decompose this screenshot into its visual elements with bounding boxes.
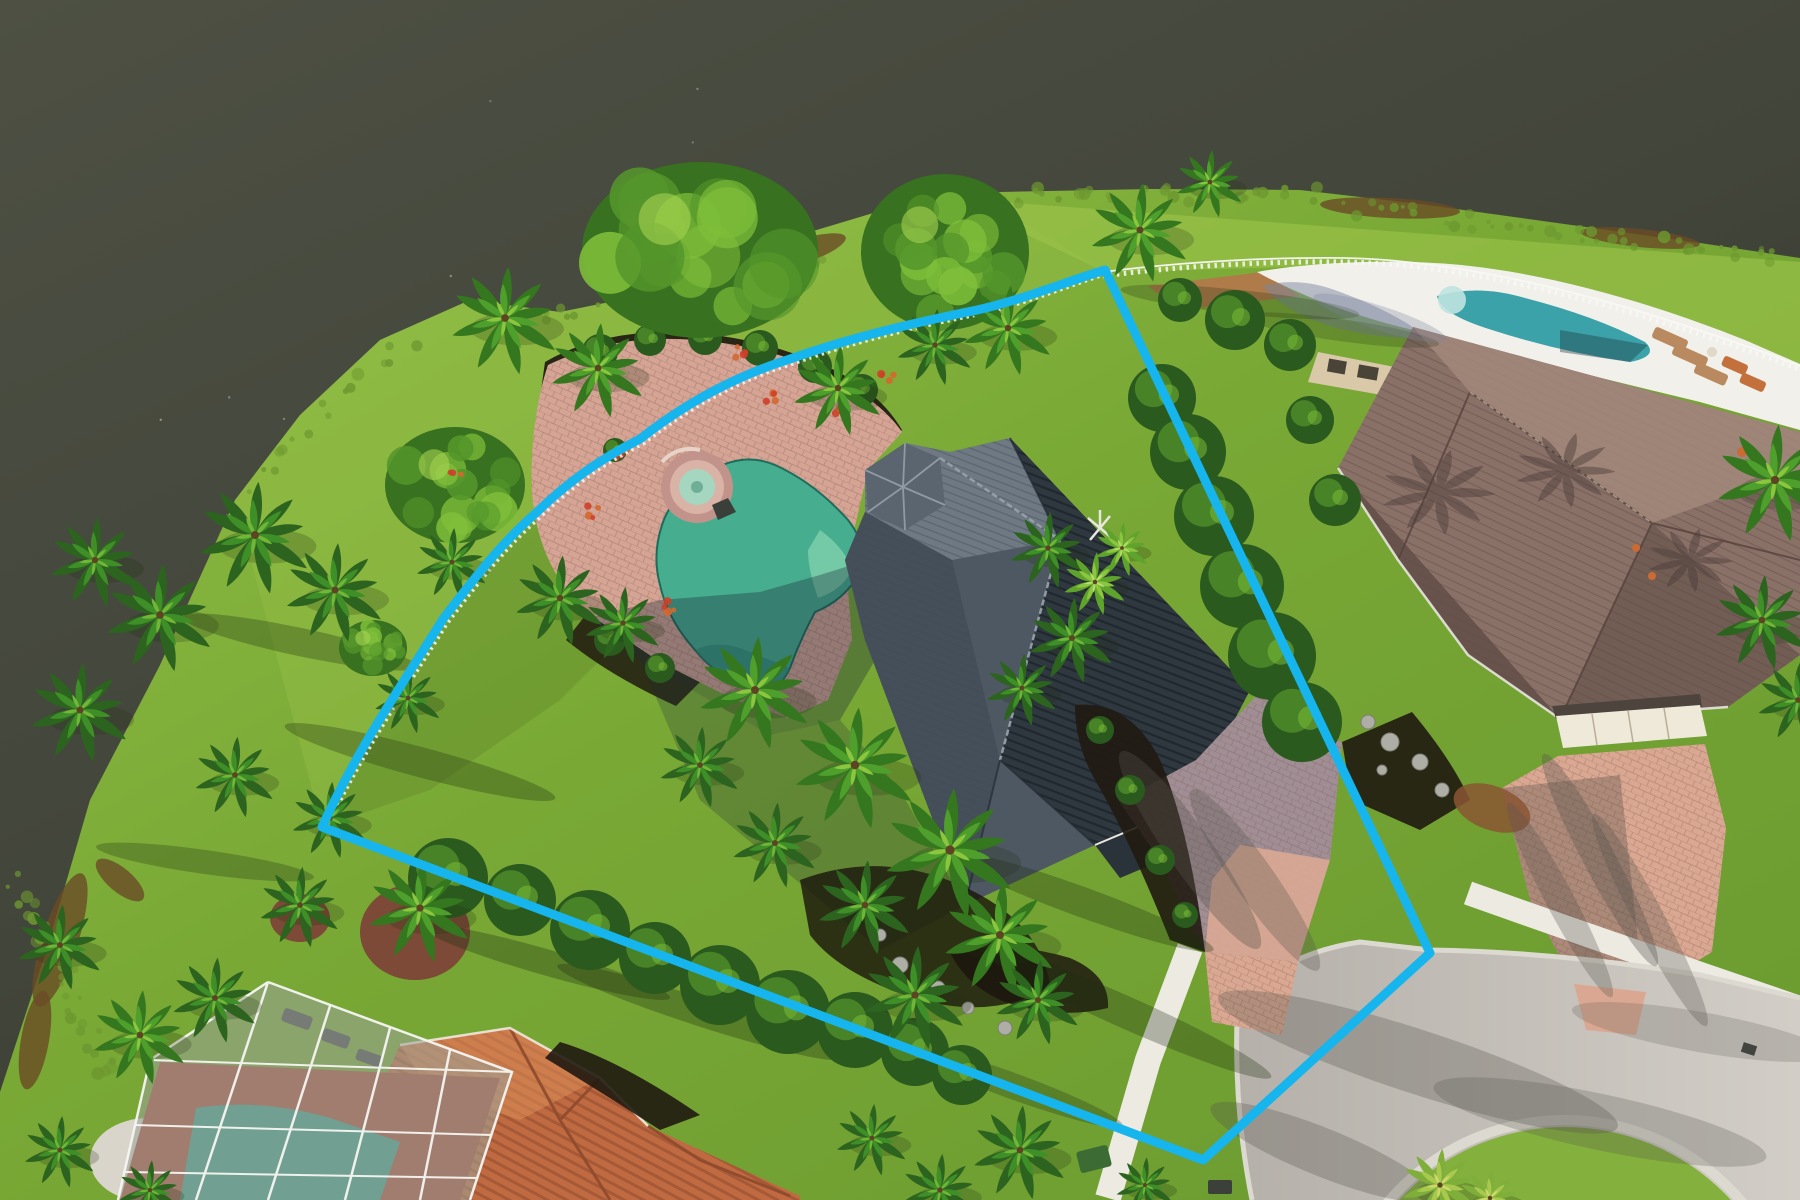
cast-shadow	[180, 603, 421, 680]
cast-shadow	[1530, 747, 1671, 974]
algae-clump	[1732, 245, 1738, 251]
roof-nook	[865, 443, 945, 530]
algae-clump	[261, 467, 266, 472]
algae-clump	[1465, 209, 1475, 219]
algae-clump	[1257, 187, 1268, 198]
algae-clump	[70, 965, 78, 973]
palm-cluster-bed	[800, 866, 1050, 1007]
algae-clump	[1105, 192, 1112, 199]
ground-shadows	[94, 278, 1800, 1200]
algae-clump	[760, 269, 769, 278]
algae-clump	[1031, 182, 1044, 195]
flowering-shrub	[613, 445, 630, 461]
algae-clump	[1769, 248, 1775, 254]
sidewalk-left	[1108, 948, 1190, 1198]
landscape-boulder	[874, 929, 886, 941]
neighbor-roof-fascia	[1338, 468, 1728, 719]
algae-clump	[1310, 197, 1318, 205]
algae-clump	[1575, 225, 1585, 235]
palm-tree	[836, 1104, 911, 1177]
mulch-ring	[360, 884, 470, 980]
algae-clump	[27, 912, 40, 925]
white-fence	[322, 258, 1800, 829]
shrub	[742, 330, 778, 366]
palm-tree	[106, 564, 219, 673]
algae-clump	[1594, 238, 1599, 243]
neighbor-pool-shadow	[1560, 330, 1648, 362]
palm-tree	[1010, 512, 1090, 589]
driveway-left-bed	[1075, 705, 1205, 952]
algae-clump	[1281, 185, 1288, 192]
aerial-photo-canvas	[0, 0, 1800, 1200]
shore-mud-patch	[21, 868, 99, 1012]
shrub	[1174, 476, 1254, 556]
entry-gable-fascia	[1095, 805, 1190, 845]
water-sparkle	[599, 457, 601, 459]
boulders	[874, 715, 1449, 1035]
algae-clump	[1351, 210, 1362, 221]
roof-hip-lines	[965, 438, 1095, 905]
property-boundary-outline	[322, 270, 1430, 1160]
algae-clump	[1368, 198, 1376, 206]
palm-tree	[1757, 661, 1800, 743]
algae-clump	[304, 430, 313, 439]
algae-clump	[42, 922, 49, 929]
algae-clump	[52, 940, 59, 947]
palm-tree	[585, 587, 665, 664]
water-sparkle	[1007, 853, 1009, 855]
shrub	[1264, 319, 1316, 371]
algae-clump	[14, 900, 23, 909]
algae-clump	[1341, 201, 1345, 205]
shrub	[1205, 290, 1265, 350]
tile-roof	[330, 1028, 800, 1200]
algae-clump	[1676, 237, 1683, 244]
algae-clump	[1160, 185, 1171, 196]
palm-tree	[93, 990, 192, 1085]
shrub	[846, 374, 878, 406]
algae-clump	[1216, 183, 1228, 195]
neighbor-pool	[1437, 290, 1650, 362]
shrub	[1262, 682, 1342, 762]
water-sparkle	[812, 335, 814, 337]
palm-tree	[551, 323, 650, 418]
palm-tree	[368, 859, 476, 964]
palm-tree	[1029, 597, 1119, 683]
algae-clump	[343, 388, 349, 394]
algae-clump	[49, 956, 58, 965]
cast-shadow	[1310, 285, 1451, 351]
road-curb	[1237, 942, 1800, 1200]
flowering-shrub	[832, 401, 848, 417]
cast-shadow	[553, 952, 847, 1071]
enclosure-pool	[180, 1105, 400, 1200]
algae-clump	[1183, 196, 1194, 207]
palm-tree	[416, 528, 491, 601]
front-yard-bed	[950, 947, 1108, 1013]
water-sparkle	[1024, 420, 1026, 422]
pool-lower-bed	[566, 612, 700, 706]
palm-tree	[973, 1105, 1072, 1200]
flowering-shrub	[763, 389, 779, 405]
neighbor-garage-shade	[1552, 694, 1702, 719]
mailbox	[1741, 1042, 1757, 1056]
palm-tree	[374, 666, 445, 734]
algae-clump	[78, 1019, 88, 1029]
roof-vent	[1737, 447, 1747, 457]
shrub	[645, 653, 675, 683]
algae-clump	[721, 270, 726, 275]
water-sparkle	[535, 414, 537, 416]
palm-tree	[732, 802, 822, 888]
algae-clump	[671, 272, 681, 282]
neighbor-driveway-apron	[1574, 984, 1646, 1035]
shrub	[1286, 396, 1334, 444]
algae-clump	[319, 400, 327, 408]
algae-clump	[1055, 196, 1062, 203]
water-sparkle	[450, 275, 452, 277]
roof-vent	[1648, 572, 1656, 580]
shrub	[746, 970, 830, 1054]
tile-roof-texture	[330, 1028, 800, 1200]
algae-clump	[1683, 243, 1695, 255]
shoreline-land	[0, 189, 1800, 1200]
shore-mud-patch	[751, 226, 850, 278]
algae-clump	[21, 890, 34, 903]
cast-shadow	[1202, 1085, 1443, 1200]
shrub	[817, 992, 893, 1068]
landscape-boulder	[998, 1021, 1012, 1035]
algae-clump	[1527, 225, 1534, 232]
algae-clump	[411, 340, 422, 351]
lounge-chairs	[1651, 326, 1767, 393]
cast-shadow	[1496, 796, 1624, 1003]
screen-enclosure-mesh	[118, 982, 512, 1200]
water-sparkle	[696, 88, 698, 90]
hedge-shrubs	[408, 278, 1361, 1105]
fence-back-rail	[322, 272, 1103, 829]
roof-dark-slope	[1000, 438, 1250, 845]
palm-tree	[285, 543, 389, 643]
canopy-tree	[339, 619, 407, 676]
water-sparkle	[309, 709, 311, 711]
driveway-right-bed	[1342, 712, 1470, 830]
cast-shadow	[1569, 990, 1800, 1075]
palm-shadow-on-roof	[1381, 449, 1496, 536]
algae-clump	[661, 279, 672, 290]
cast-shadow	[94, 835, 315, 889]
weather-vane	[1088, 510, 1112, 540]
neighbor-house-right	[1148, 262, 1800, 992]
shrub	[1228, 612, 1316, 700]
palm-tree	[793, 345, 887, 436]
algae-clump	[82, 1043, 92, 1053]
enclosure-brick-deck	[120, 1062, 500, 1200]
algae-clump	[274, 447, 284, 457]
palm-tree	[1716, 424, 1800, 542]
palm-tree	[1715, 575, 1800, 670]
cast-shadow	[1208, 967, 1627, 1158]
palm-tree	[30, 663, 134, 763]
algae-clump	[1078, 188, 1090, 200]
palm-tree	[963, 285, 1057, 376]
sidewalk-right	[1468, 893, 1800, 1008]
neighbor-roof-ridges	[1398, 392, 1800, 719]
main-house-roof	[845, 438, 1250, 905]
palm-tree	[50, 517, 144, 608]
cul-de-sac-island	[1340, 1127, 1790, 1200]
tile-roof-ridges	[510, 1028, 790, 1200]
neighbor-roof-dark-face2	[1560, 523, 1800, 719]
fence-back-pickets	[326, 274, 1105, 829]
gravel-bed	[90, 1118, 206, 1200]
algae-clump	[1467, 225, 1476, 234]
algae-clump	[656, 283, 664, 291]
algae-clump	[277, 445, 288, 456]
mulch-ring	[270, 894, 330, 942]
algae-clump	[59, 981, 64, 986]
algae-clump	[1607, 234, 1618, 245]
palm-tree	[24, 1116, 99, 1189]
algae-clump	[709, 279, 719, 289]
shrub	[798, 349, 832, 383]
spa-water	[679, 469, 715, 505]
landscape-boulder	[1381, 733, 1399, 751]
water-sparkle	[118, 852, 120, 854]
roof-main-ridge	[940, 458, 1060, 760]
algae-clump	[1016, 197, 1020, 201]
algae-clump	[759, 266, 769, 276]
cast-shadow	[1103, 739, 1277, 961]
shrub	[881, 1018, 949, 1086]
algae-clump	[1108, 195, 1116, 203]
house-shadow	[590, 560, 875, 735]
lake-water	[0, 0, 1800, 1200]
landscape-boulder	[1361, 715, 1375, 729]
shore-algae	[6, 181, 1775, 1079]
canopy-trees	[339, 162, 1029, 676]
roof-rib-texture	[1000, 438, 1250, 845]
palm-tree	[794, 707, 921, 830]
utility-box-green	[1076, 1144, 1112, 1173]
utility-box-dark	[1208, 1180, 1232, 1194]
algae-clump	[1234, 191, 1247, 204]
algae-clump	[1580, 238, 1585, 243]
shore-mud-patch	[1320, 194, 1461, 221]
algae-clump	[1378, 205, 1384, 211]
pool-deck-texture	[532, 339, 902, 718]
neighbor-roof	[1338, 327, 1800, 719]
algae-clump	[1401, 205, 1405, 209]
algae-clump	[1506, 222, 1511, 227]
flowering-shrub	[584, 502, 601, 520]
landscape-boulder	[931, 981, 945, 995]
main-driveway-sunpatch	[1205, 845, 1330, 962]
algae-clump	[1765, 257, 1775, 267]
garage-door-seams	[1592, 708, 1669, 745]
algae-clump	[104, 1061, 117, 1074]
shrub	[680, 945, 760, 1025]
palm-tree	[698, 636, 816, 750]
shrub	[1128, 364, 1196, 432]
neighbor-driveway	[1502, 744, 1726, 992]
algae-clump	[1141, 185, 1146, 190]
cast-shadow	[416, 914, 673, 1011]
neighbor-pool-deck	[1257, 262, 1800, 430]
landscape-boulder	[1435, 783, 1449, 797]
shrub	[1086, 716, 1114, 744]
cast-shadow	[1239, 305, 1440, 355]
algae-clump	[736, 267, 744, 275]
algae-clump	[64, 1008, 71, 1015]
palm-tree	[292, 782, 372, 859]
water-sparkle	[490, 414, 492, 416]
water-sparkle	[160, 419, 162, 421]
flowering-shrub	[662, 597, 677, 616]
palm-shadow-on-roof	[1515, 432, 1616, 508]
shrub	[1309, 474, 1361, 526]
palm-shadow-on-roof	[1647, 528, 1733, 593]
algae-clump	[1190, 187, 1195, 192]
water-sparkle	[117, 810, 119, 812]
water-sparkle	[283, 418, 285, 420]
sunlit-bank	[950, 198, 1800, 372]
algae-clump	[1167, 191, 1179, 203]
palm-tree	[863, 946, 971, 1051]
patio-furniture	[281, 1007, 384, 1068]
algae-clump	[792, 261, 800, 269]
neighbor-driveway-shadow	[1502, 775, 1640, 984]
water-sparkle	[711, 272, 713, 274]
algae-clump	[615, 297, 619, 301]
algae-clump	[30, 935, 43, 948]
algae-clump	[1085, 186, 1093, 194]
palm-tree	[884, 788, 1021, 920]
algae-clump	[1490, 225, 1494, 229]
algae-clump	[1448, 220, 1460, 232]
palm-trees	[17, 150, 1800, 1200]
algae-clump	[58, 973, 65, 980]
palm-tree	[902, 1154, 982, 1200]
algae-clump	[811, 259, 820, 268]
roof-vent	[1632, 544, 1640, 552]
water-sparkle	[586, 316, 588, 318]
swimming-pool	[656, 460, 862, 691]
cast-shadow	[281, 711, 559, 812]
neighbor-house-lower-left	[90, 884, 800, 1200]
algae-clump	[346, 383, 356, 393]
landscape-boulder	[962, 1002, 974, 1014]
water-sparkle	[228, 396, 230, 398]
algae-clump	[1390, 203, 1399, 212]
cul-de-sac	[1076, 893, 1800, 1200]
cast-shadow	[893, 1032, 1127, 1139]
algae-clump	[108, 1057, 116, 1065]
neighbor-roof-dark-face	[1338, 468, 1560, 719]
algae-clump	[65, 1013, 77, 1025]
algae-clump	[542, 316, 551, 325]
algae-clump	[325, 412, 332, 419]
palm-tree	[451, 267, 564, 376]
algae-clump	[1410, 209, 1418, 217]
palm-tree	[194, 736, 279, 818]
algae-clump	[618, 298, 628, 308]
algae-clump	[1683, 249, 1689, 255]
shrub	[582, 334, 618, 370]
landscape-boulder	[1377, 765, 1387, 775]
shore-mud-patch	[1579, 223, 1700, 253]
neighbor-roof-texture	[1338, 327, 1800, 719]
shore-mud-patch	[13, 988, 58, 1091]
cast-shadow	[1428, 1059, 1772, 1184]
spa-paver-ring	[661, 451, 733, 523]
algae-clump	[78, 996, 83, 1001]
roof-lit-slope	[865, 438, 1060, 560]
flowers	[448, 344, 897, 616]
algae-clump	[570, 312, 578, 320]
water-sparkle	[529, 524, 531, 526]
algae-clump	[1696, 245, 1703, 252]
shore-mud	[13, 194, 1701, 1091]
spa-side-bed	[560, 432, 648, 520]
canopy-tree	[385, 427, 525, 544]
neighbor-garage-door	[1556, 705, 1707, 748]
palm-tree	[259, 866, 344, 948]
palm-tree	[943, 881, 1061, 995]
algae-clump	[100, 1066, 111, 1077]
neighbor-roof-ridge-caps	[1470, 392, 1652, 523]
algae-clump	[625, 283, 634, 292]
entry-gable	[1095, 805, 1210, 878]
palm-tree	[1090, 183, 1194, 283]
algae-clump	[727, 263, 733, 269]
neighbor-house-wall	[1308, 352, 1420, 400]
algae-clump	[655, 288, 660, 293]
tile-roof-lit	[400, 1028, 600, 1120]
canopy-tree	[579, 162, 819, 338]
main-driveway-texture	[1118, 694, 1342, 962]
water-sparkle	[275, 688, 277, 690]
roof-nook-ridges	[865, 443, 945, 530]
algae-clump	[247, 489, 252, 494]
water-sparkle	[451, 632, 453, 634]
house-shadow-grass	[640, 660, 965, 950]
algae-clump	[1456, 224, 1460, 228]
neighbor-window	[1327, 359, 1347, 375]
algae-clump	[1719, 245, 1723, 249]
shrub	[1145, 845, 1175, 875]
water-sparkles	[89, 88, 1027, 867]
algae-clump	[1014, 199, 1024, 209]
screen-enclosure-frame	[118, 982, 512, 1200]
palm-tree	[818, 860, 917, 955]
water-sparkle	[274, 624, 276, 626]
algae-clump	[289, 437, 294, 442]
main-driveway	[1118, 694, 1342, 962]
algae-clump	[57, 960, 69, 972]
algae-clump	[385, 342, 394, 351]
cast-shadow	[972, 932, 1277, 1091]
spa-center	[691, 481, 703, 493]
algae-clump	[1408, 202, 1418, 212]
palm-tree	[118, 1160, 184, 1200]
shrub	[1172, 902, 1198, 928]
algae-clump	[1141, 185, 1149, 193]
algae-clump	[1758, 249, 1765, 256]
palm-tree	[1095, 522, 1152, 577]
algae-clump	[90, 1049, 99, 1058]
palm-tree	[986, 654, 1061, 727]
